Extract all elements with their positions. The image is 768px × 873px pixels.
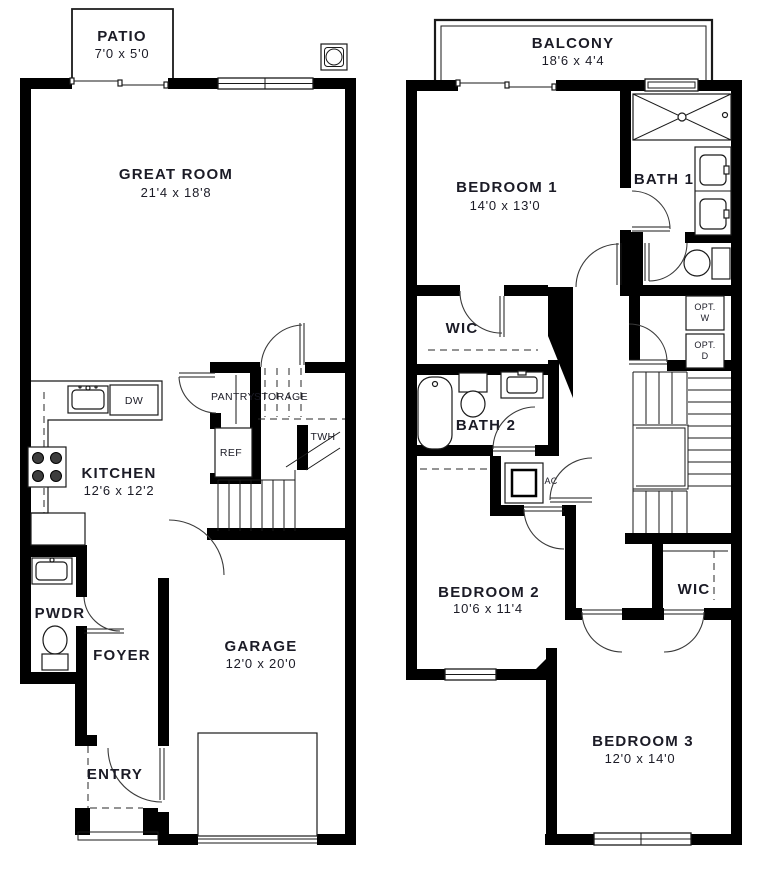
floor2-plan: BALCONY 18'6 x 4'4 [406,20,742,845]
kitchen-dims: 12'6 x 12'2 [84,483,155,498]
balcony-dims: 18'6 x 4'4 [542,53,605,68]
bath2: BATH 2 [418,371,543,451]
bedroom3-window [594,833,691,845]
bedroom3-dims: 12'0 x 14'0 [605,751,676,766]
balcony-label: BALCONY [532,35,615,52]
refrigerator: REF [215,428,252,477]
stairs-floor2 [633,372,731,533]
patio: PATIO 7'0 x 5'0 [72,9,173,79]
great-room-dims: 21'4 x 18'8 [141,185,212,200]
bath2-label: BATH 2 [456,417,516,434]
patio-label: PATIO [97,28,147,45]
ac-label: AC [544,476,557,486]
bedroom1: BEDROOM 1 14'0 x 13'0 [456,179,621,287]
bath1-window [645,79,698,91]
bedroom2-dims: 10'6 x 11'4 [453,601,523,616]
bath2-tub [418,377,452,449]
entry-label: ENTRY [87,766,143,783]
floorplan-drawing: PATIO 7'0 x 5'0 [0,0,768,873]
bath1-toilet [684,250,710,276]
bedroom1-dims: 14'0 x 13'0 [470,198,541,213]
opt-dryer: OPT. D [686,334,724,368]
shower [633,94,731,140]
wic-lower-label: WIC [678,581,711,598]
pwdr-label: PWDR [35,605,86,622]
storage: STORAGE [254,368,345,419]
bedroom2-window [445,669,496,680]
bath2-toilet [459,373,487,417]
opt-washer-line1: OPT. [694,302,715,312]
garage: GARAGE 12'0 x 20'0 [198,638,317,843]
great-room-label: GREAT ROOM [119,166,233,183]
bedroom1-label: BEDROOM 1 [456,179,558,196]
bath2-sink [501,371,543,398]
opt-washer-line2: W [701,313,710,323]
great-room: GREAT ROOM 21'4 x 18'8 [119,166,233,200]
bath1-door [632,191,670,231]
wic-lower: WIC [663,551,728,600]
floorplan-page: PATIO 7'0 x 5'0 [0,0,768,873]
floor1-plan: PATIO 7'0 x 5'0 [20,9,356,845]
foyer-label: FOYER [93,647,151,664]
kitchen-label: KITCHEN [81,465,156,482]
light-fixture-icon [321,44,347,70]
foyer: FOYER [93,647,151,664]
bath1-label: BATH 1 [634,171,694,188]
storage-label: STORAGE [254,391,308,403]
opt-dryer-line1: OPT. [694,340,715,350]
bedroom1-door [576,243,621,287]
great-room-hall-door [261,323,304,367]
dishwasher: DW [110,385,158,415]
garage-dims: 12'0 x 20'0 [226,656,297,671]
patio-sliding-door [70,78,168,88]
wic-upper: WIC [428,291,538,350]
bedroom2-door [524,507,564,549]
garage-door [198,733,317,843]
patio-dims: 7'0 x 5'0 [95,46,150,61]
bedroom3-label: BEDROOM 3 [592,733,694,750]
dishwasher-label: DW [125,395,143,407]
bedroom3-hall-door [582,610,622,652]
garage-label: GARAGE [224,638,297,655]
tankless-water-heater: TWH [286,431,340,470]
balcony-sliding-door [456,80,556,90]
bedroom3-wic-door [664,610,704,652]
pwdr-door [84,597,124,633]
ac-unit [512,470,536,496]
ref-label: REF [220,447,242,459]
opt-dryer-line2: D [702,351,709,361]
laundry-closet: OPT. W OPT. D [629,296,724,368]
balcony: BALCONY 18'6 x 4'4 [435,20,712,80]
pwdr-sink [32,558,72,584]
opt-washer: OPT. W [686,296,724,330]
pwdr-toilet [42,626,68,670]
pantry-label: PANTRY [211,391,255,403]
stove [28,447,66,487]
ac-closet: AC [505,458,592,503]
bedroom2-label: BEDROOM 2 [438,584,540,601]
kitchen: DW KITCHEN 12'6 x 12'2 [28,381,162,545]
bedroom3: BEDROOM 3 12'0 x 14'0 [582,610,704,845]
toilet-room [645,243,730,281]
bath1-vanity [695,147,731,235]
great-room-window [218,78,313,89]
kitchen-sink [68,386,108,413]
bath1: BATH 1 [632,94,731,281]
